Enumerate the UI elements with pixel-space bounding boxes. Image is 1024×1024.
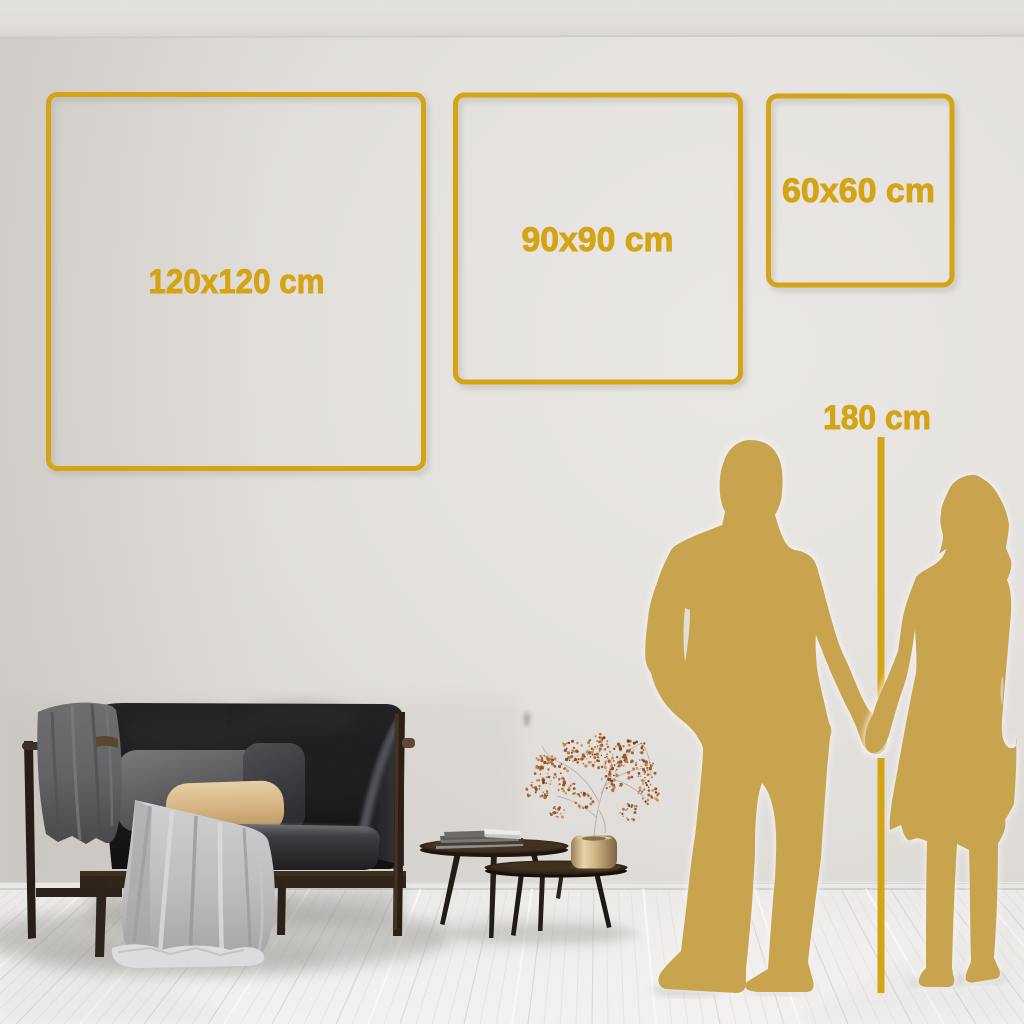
svg-text:90x90 cm: 90x90 cm: [522, 221, 674, 259]
svg-text:120x120 cm: 120x120 cm: [149, 263, 325, 301]
svg-text:180 cm: 180 cm: [823, 399, 931, 437]
svg-text:60x60 cm: 60x60 cm: [782, 172, 935, 210]
